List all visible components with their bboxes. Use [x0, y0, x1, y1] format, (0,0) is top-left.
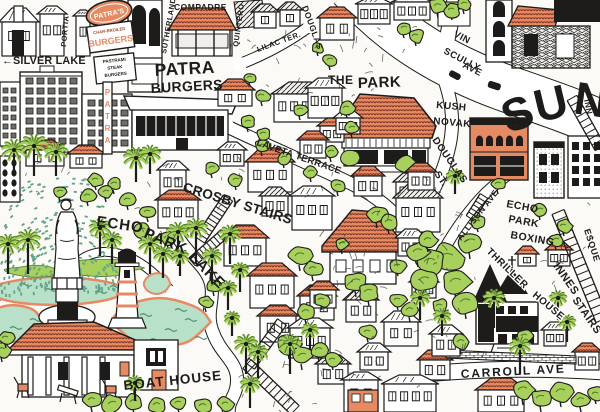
svg-text:T: T: [105, 112, 110, 121]
svg-text:A: A: [105, 100, 111, 109]
svg-text:R: R: [105, 124, 111, 133]
svg-text:PARK: PARK: [358, 73, 402, 92]
svg-text:P: P: [105, 88, 111, 97]
svg-text:←SILVER LAKE: ←SILVER LAKE: [2, 55, 86, 67]
svg-text:A: A: [105, 136, 111, 145]
svg-text:COMPADRE: COMPADRE: [174, 2, 227, 12]
svg-text:THE: THE: [328, 73, 354, 87]
